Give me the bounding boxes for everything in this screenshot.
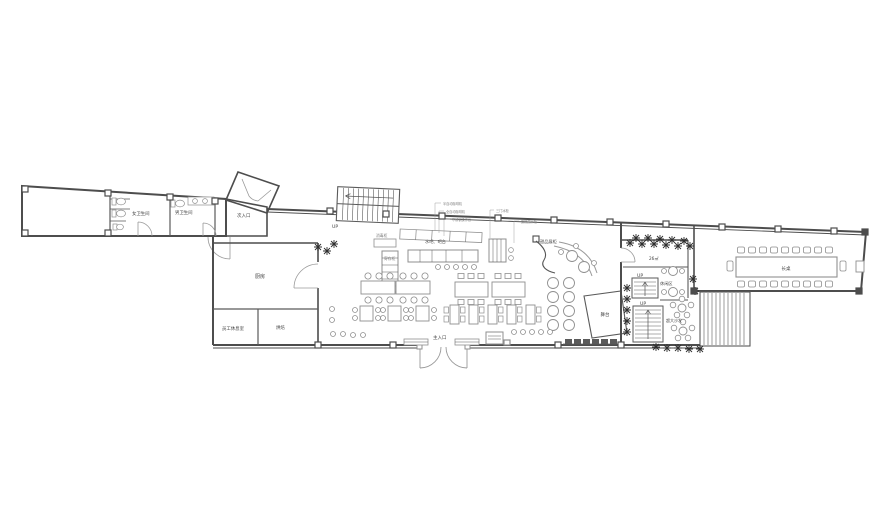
door-arc: [138, 222, 152, 236]
floor-plan-svg: 女卫生间 男卫生间 次入口 厨房 员工休息室 烘焙 UP 消毒柜 寄存柜 水吧、…: [0, 0, 882, 526]
door-arc: [621, 248, 635, 262]
label-sofa: 超大沙发: [666, 317, 682, 323]
sterilizer-cabinet: [374, 239, 396, 247]
label-locker: 寄存柜: [384, 256, 396, 261]
dessert-display-case: [489, 239, 513, 262]
floor-plan-canvas: 女卫生间 男卫生间 次入口 厨房 员工休息室 烘焙 UP 消毒柜 寄存柜 水吧、…: [0, 0, 882, 526]
label-lounge: 休闲区: [660, 280, 673, 287]
dining-long-tables-square: [455, 274, 525, 305]
label-men-toilet: 男卫生间: [175, 209, 193, 216]
label-secondary-entrance: 次入口: [237, 212, 251, 219]
secondary-entrance-vestibule: [226, 172, 279, 213]
label-bakery: 烘焙: [276, 324, 285, 331]
exterior-staircase: [336, 187, 399, 224]
label-stage: 舞台: [601, 311, 610, 318]
label-main-entrance: 主入口: [433, 334, 447, 341]
door-arc: [208, 237, 230, 259]
kitchen-door-arc: [294, 264, 318, 288]
label-up-exterior: UP: [332, 224, 338, 230]
dining-small-tables: [353, 306, 437, 321]
toilet-fixture: [112, 197, 214, 230]
dining-round-tables: [548, 278, 575, 331]
window-marker: [856, 261, 864, 272]
label-area-26: 26㎡: [649, 255, 659, 261]
label-ann-2: 不锈钢操作台: [452, 217, 471, 222]
booth-seating: [554, 242, 597, 276]
label-bar: 水吧、吧台: [425, 238, 446, 245]
cashier-counter: [486, 332, 510, 345]
label-up-1: UP: [637, 273, 643, 279]
dining-narrow-tables: [444, 305, 541, 324]
outdoor-deck-steps: [700, 292, 750, 346]
bar-counter: [408, 250, 478, 262]
label-ann-4: 蛋糕展示柜: [521, 219, 538, 224]
window-seat-row: [563, 339, 618, 344]
label-ann-1: 全自动咖啡机: [446, 209, 466, 214]
label-ann-3: 三门冰柜: [496, 208, 510, 213]
building-shell: [213, 209, 866, 348]
main-entrance: [404, 339, 479, 368]
label-dessert: 甜品展柜: [540, 238, 557, 245]
toilet-block: [22, 186, 267, 259]
label-sterilizer: 消毒柜: [376, 233, 388, 238]
label-long-table: 长桌: [782, 265, 791, 272]
label-ann-0: 半自动咖啡机: [443, 201, 463, 206]
label-kitchen: 厨房: [255, 273, 265, 280]
label-women-toilet: 女卫生间: [132, 210, 150, 217]
label-staff-lounge: 员工休息室: [222, 325, 245, 332]
label-up-2: UP: [640, 301, 646, 307]
interior-stair-1: [632, 278, 658, 298]
interior-stair-2: [633, 306, 663, 342]
door-arc: [203, 223, 216, 236]
